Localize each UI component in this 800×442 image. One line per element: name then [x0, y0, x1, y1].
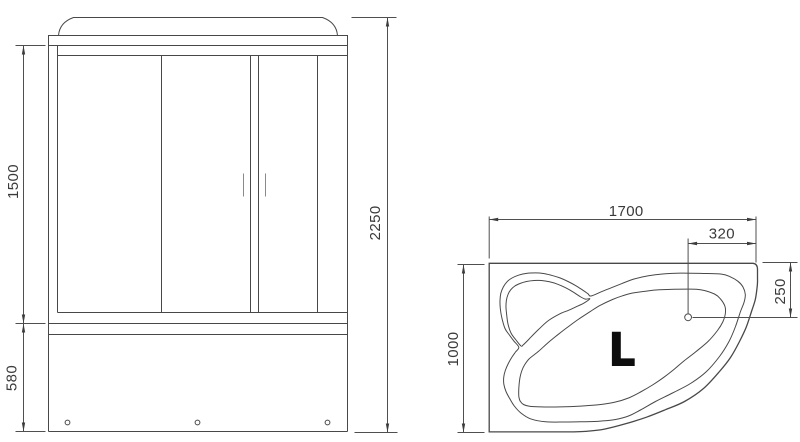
svg-text:250: 250	[772, 278, 789, 304]
svg-text:580: 580	[4, 365, 21, 391]
svg-text:2250: 2250	[367, 205, 384, 240]
svg-text:1000: 1000	[445, 332, 462, 367]
svg-text:320: 320	[709, 226, 735, 243]
svg-text:1500: 1500	[5, 164, 22, 199]
svg-text:1700: 1700	[609, 203, 644, 220]
